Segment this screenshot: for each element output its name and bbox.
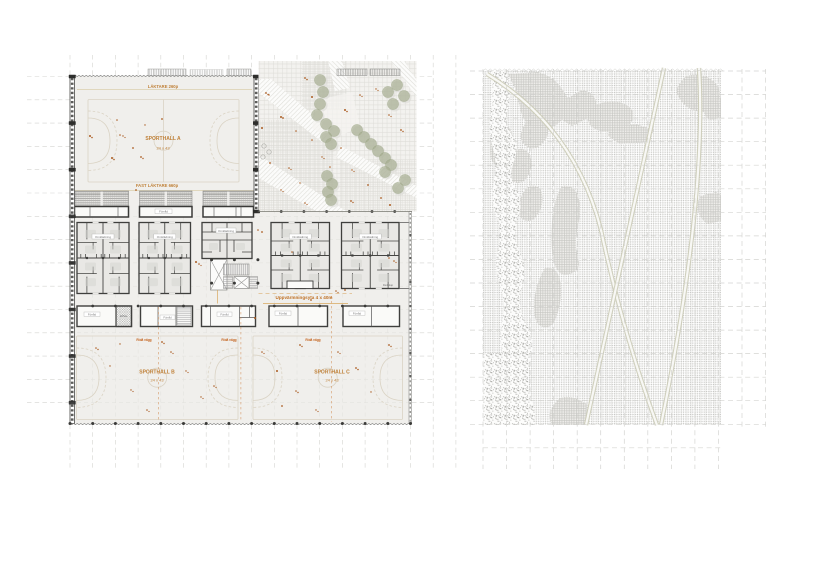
svg-text:Omklädning: Omklädning bbox=[362, 235, 378, 239]
svg-text:FAST LÄKTARE 660p: FAST LÄKTARE 660p bbox=[136, 183, 179, 188]
svg-text:Ridå vägg: Ridå vägg bbox=[305, 338, 320, 342]
svg-text:24 x 43: 24 x 43 bbox=[325, 378, 339, 383]
svg-text:Förråd: Förråd bbox=[163, 316, 172, 320]
svg-text:Omklädning: Omklädning bbox=[157, 235, 173, 239]
svg-text:24 x 43: 24 x 43 bbox=[150, 378, 164, 383]
svg-text:Förråd: Förråd bbox=[279, 312, 288, 316]
svg-text:Ridå vägg: Ridå vägg bbox=[136, 338, 151, 342]
svg-text:El/Tele: El/Tele bbox=[120, 315, 128, 318]
svg-text:Redskap: Redskap bbox=[383, 283, 394, 287]
svg-text:Ridå vägg: Ridå vägg bbox=[221, 338, 236, 342]
svg-text:Omklädning: Omklädning bbox=[218, 229, 234, 233]
svg-text:Förråd: Förråd bbox=[159, 210, 168, 214]
svg-text:Uppvärmningsyta 4 x 40m: Uppvärmningsyta 4 x 40m bbox=[276, 295, 333, 300]
svg-text:Omklädning: Omklädning bbox=[292, 235, 308, 239]
svg-text:24 x 43: 24 x 43 bbox=[156, 146, 170, 151]
svg-text:Förråd: Förråd bbox=[220, 313, 229, 317]
svg-text:LÄKTARE 260p: LÄKTARE 260p bbox=[148, 84, 179, 89]
svg-text:Förråd: Förråd bbox=[88, 313, 97, 317]
svg-text:SPORTHALL A: SPORTHALL A bbox=[145, 136, 181, 142]
svg-text:Förråd: Förråd bbox=[353, 312, 362, 316]
svg-text:SPORTHALL B: SPORTHALL B bbox=[139, 370, 175, 376]
svg-text:SPORTHALL C: SPORTHALL C bbox=[314, 370, 350, 376]
svg-text:Omklädning: Omklädning bbox=[95, 235, 111, 239]
